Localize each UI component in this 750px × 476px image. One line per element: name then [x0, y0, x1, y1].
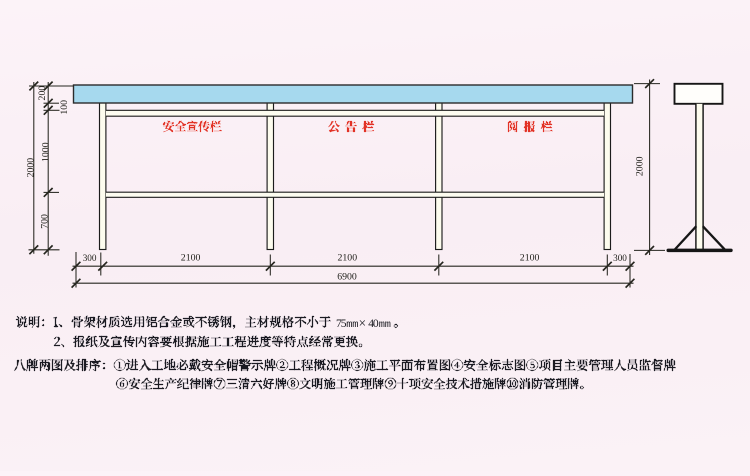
svg-text:6900: 6900: [337, 272, 357, 283]
svg-text:2100: 2100: [181, 253, 201, 264]
svg-text:1000: 1000: [41, 142, 52, 162]
svg-text:300: 300: [83, 253, 97, 263]
svg-text:mm: mm: [379, 319, 391, 331]
svg-text:75: 75: [336, 317, 347, 330]
svg-text:×: ×: [359, 315, 366, 330]
svg-text:40: 40: [368, 317, 379, 330]
svg-text:100: 100: [59, 100, 70, 115]
svg-text:300: 300: [613, 253, 627, 263]
svg-text:200: 200: [37, 86, 48, 101]
svg-text:700: 700: [40, 214, 51, 229]
svg-text:2100: 2100: [520, 253, 540, 264]
svg-text:2000: 2000: [26, 158, 37, 178]
svg-text:mm: mm: [346, 319, 358, 331]
svg-text:2000: 2000: [635, 156, 646, 176]
svg-text:2100: 2100: [338, 253, 358, 264]
